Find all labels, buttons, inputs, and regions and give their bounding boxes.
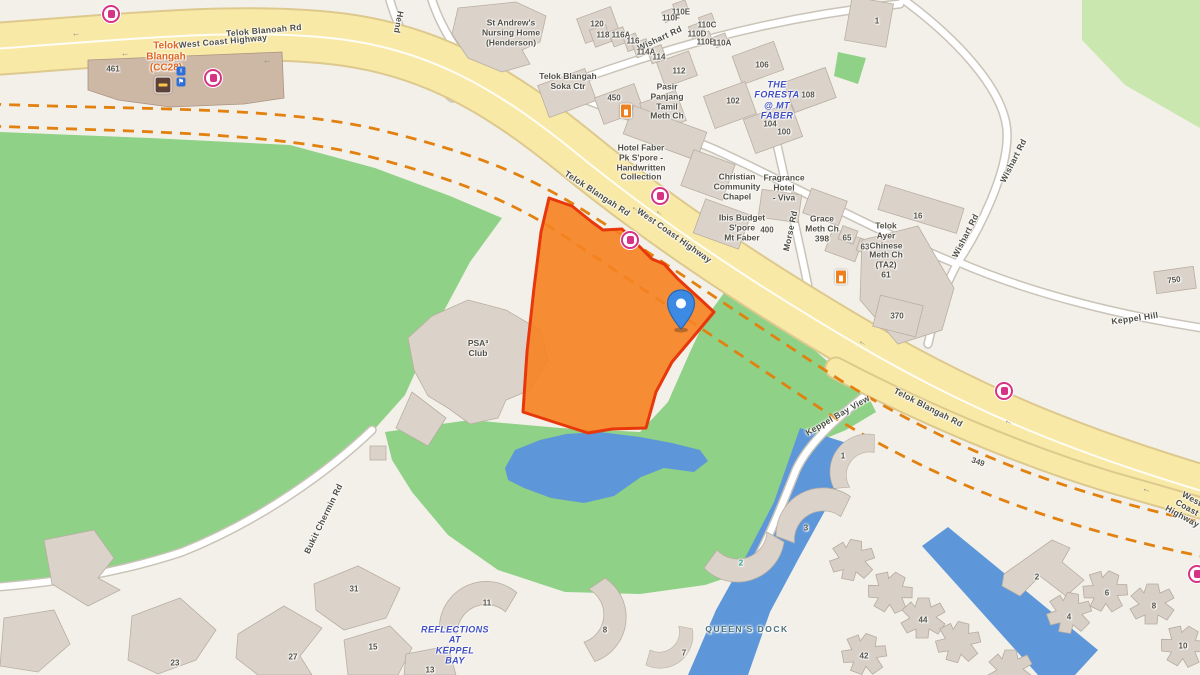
bus-stop-icon[interactable] [621,231,639,249]
location-pin[interactable] [666,289,696,338]
fuel-station-icon [835,270,847,285]
mrt-station-icon[interactable] [155,77,172,94]
bus-stop-icon[interactable] [102,5,120,23]
map-base-layer [0,0,1200,675]
info-icon: ⚑ [177,78,186,87]
bus-stop-icon[interactable] [204,69,222,87]
info-icon: i [177,67,186,76]
map-canvas[interactable]: Telok Blanoah RdWest Coast HighwayTelok … [0,0,1200,675]
bus-stop-icon[interactable] [1188,565,1200,583]
bus-stop-icon[interactable] [651,187,669,205]
fuel-station-icon [620,104,632,119]
bus-stop-icon[interactable] [995,382,1013,400]
mrt-station-building [88,52,284,107]
